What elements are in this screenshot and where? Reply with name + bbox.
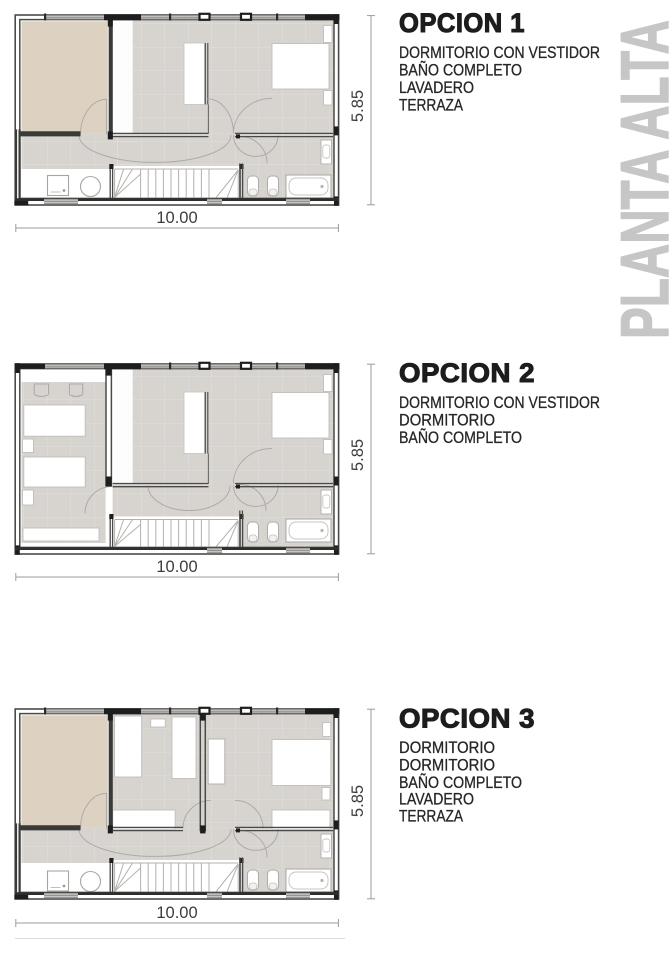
- svg-text:BAÑO COMPLETO: BAÑO COMPLETO: [399, 60, 522, 80]
- svg-text:10.00: 10.00: [156, 558, 197, 576]
- svg-text:OPCION 3: OPCION 3: [399, 704, 535, 734]
- svg-text:5.85: 5.85: [349, 90, 367, 122]
- svg-text:DORMITORIO CON VESTIDOR: DORMITORIO CON VESTIDOR: [399, 394, 600, 412]
- svg-text:DORMITORIO: DORMITORIO: [399, 412, 495, 430]
- svg-text:DORMITORIO: DORMITORIO: [399, 739, 495, 757]
- svg-text:TERRAZA: TERRAZA: [399, 97, 463, 115]
- svg-text:BAÑO COMPLETO: BAÑO COMPLETO: [399, 427, 522, 447]
- svg-text:PLANTA ALTA: PLANTA ALTA: [607, 20, 672, 339]
- svg-text:DORMITORIO CON VESTIDOR: DORMITORIO CON VESTIDOR: [399, 44, 600, 62]
- svg-text:10.00: 10.00: [156, 904, 197, 922]
- svg-text:5.85: 5.85: [349, 439, 367, 471]
- svg-text:TERRAZA: TERRAZA: [399, 808, 463, 826]
- svg-text:OPCION 2: OPCION 2: [399, 358, 535, 388]
- svg-text:LAVADERO: LAVADERO: [399, 79, 474, 97]
- svg-text:BAÑO COMPLETO: BAÑO COMPLETO: [399, 772, 522, 792]
- svg-text:DORMITORIO: DORMITORIO: [399, 757, 495, 775]
- svg-text:10.00: 10.00: [156, 209, 197, 227]
- svg-text:5.85: 5.85: [349, 785, 367, 817]
- svg-text:LAVADERO: LAVADERO: [399, 791, 474, 809]
- svg-text:OPCION 1: OPCION 1: [399, 8, 525, 38]
